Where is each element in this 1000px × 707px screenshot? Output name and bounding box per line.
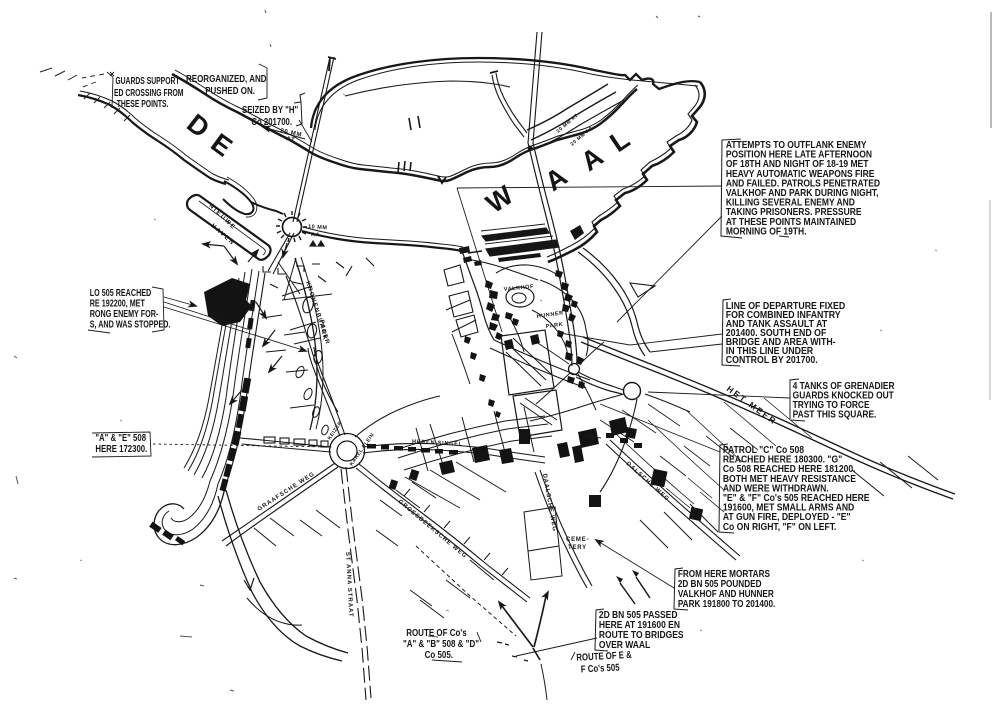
svg-text:F Co's 505: F Co's 505 — [581, 662, 620, 675]
svg-text:THESE POINTS.: THESE POINTS. — [117, 98, 169, 110]
svg-text:GUARDS SUPPORT: GUARDS SUPPORT — [115, 75, 180, 87]
svg-text:E: E — [205, 128, 237, 163]
svg-text:MORNING OF 19TH.: MORNING OF 19TH. — [726, 226, 807, 237]
svg-text:CONTROL BY 201700.: CONTROL BY 201700. — [726, 353, 818, 365]
svg-text:Co 201700.: Co 201700. — [251, 116, 292, 127]
svg-text:VALKHOF: VALKHOF — [504, 284, 535, 293]
svg-text:SEIZED BY "H": SEIZED BY "H" — [242, 104, 298, 115]
svg-text:W: W — [481, 180, 519, 219]
svg-text:PARK: PARK — [545, 322, 563, 330]
svg-text:"A" & "E" 508: "A" & "E" 508 — [95, 432, 146, 443]
svg-text:GRAAFSCHE WEG: GRAAFSCHE WEG — [257, 471, 316, 513]
svg-text:"A" & "B" 508 & "D": "A" & "B" 508 & "D" — [403, 638, 479, 649]
svg-text:REORGANIZED, AND: REORGANIZED, AND — [186, 73, 267, 84]
svg-text:HET MEER: HET MEER — [725, 384, 779, 427]
svg-text:CEME-: CEME- — [566, 537, 589, 543]
svg-text:ED CROSSING FROM: ED CROSSING FROM — [114, 87, 183, 99]
svg-text:AA: AA — [311, 232, 320, 239]
svg-text:D: D — [181, 108, 215, 144]
svg-text:Co ON RIGHT, "F" ON LEFT.: Co ON RIGHT, "F" ON LEFT. — [723, 521, 837, 532]
svg-text:Co 505.: Co 505. — [425, 649, 453, 660]
svg-text:ROUTE OF E &: ROUTE OF E & — [576, 649, 632, 663]
svg-text:PARK 191800 TO 201400.: PARK 191800 TO 201400. — [678, 598, 776, 609]
svg-text:HUNNER: HUNNER — [536, 310, 564, 320]
svg-text:DAALSCHE WEG: DAALSCHE WEG — [541, 473, 557, 532]
svg-text:L: L — [605, 124, 635, 158]
svg-text:HERE 172300.: HERE 172300. — [95, 443, 147, 454]
svg-text:AT: AT — [286, 136, 296, 144]
svg-text:GROESBEEKSCHE WEG: GROESBEEKSCHE WEG — [397, 499, 468, 560]
svg-text:TERY: TERY — [568, 545, 587, 551]
svg-text:S, AND WAS STOPPED.: S, AND WAS STOPPED. — [90, 318, 171, 329]
svg-text:A: A — [576, 141, 609, 177]
svg-text:PAST THIS SQUARE.: PAST THIS SQUARE. — [793, 409, 877, 420]
svg-text:PUSHED ON.: PUSHED ON. — [205, 85, 255, 96]
svg-text:KAREL PLEIN: KAREL PLEIN — [349, 432, 376, 467]
svg-text:10 MM: 10 MM — [308, 224, 328, 231]
